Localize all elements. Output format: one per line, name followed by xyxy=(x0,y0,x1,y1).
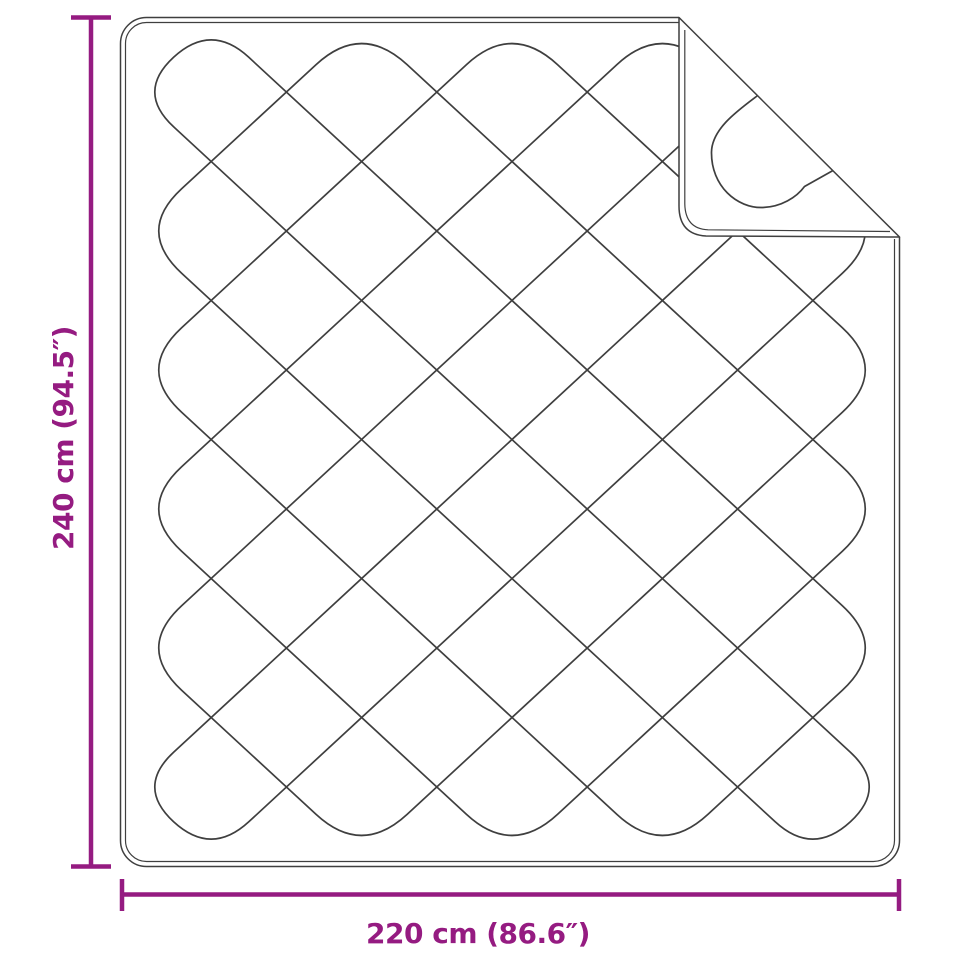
fold-flap xyxy=(679,18,900,238)
horizontal-dimension: 220 cm (86.6″) xyxy=(122,879,899,950)
vertical-dimension: 240 cm (94.5″) xyxy=(47,18,111,867)
horizontal-dimension-label: 220 cm (86.6″) xyxy=(366,917,590,950)
folded-corner xyxy=(679,18,900,238)
vertical-dimension-label: 240 cm (94.5″) xyxy=(47,326,80,550)
blanket-dimension-diagram: 240 cm (94.5″) 220 cm (86.6″) xyxy=(0,0,960,960)
